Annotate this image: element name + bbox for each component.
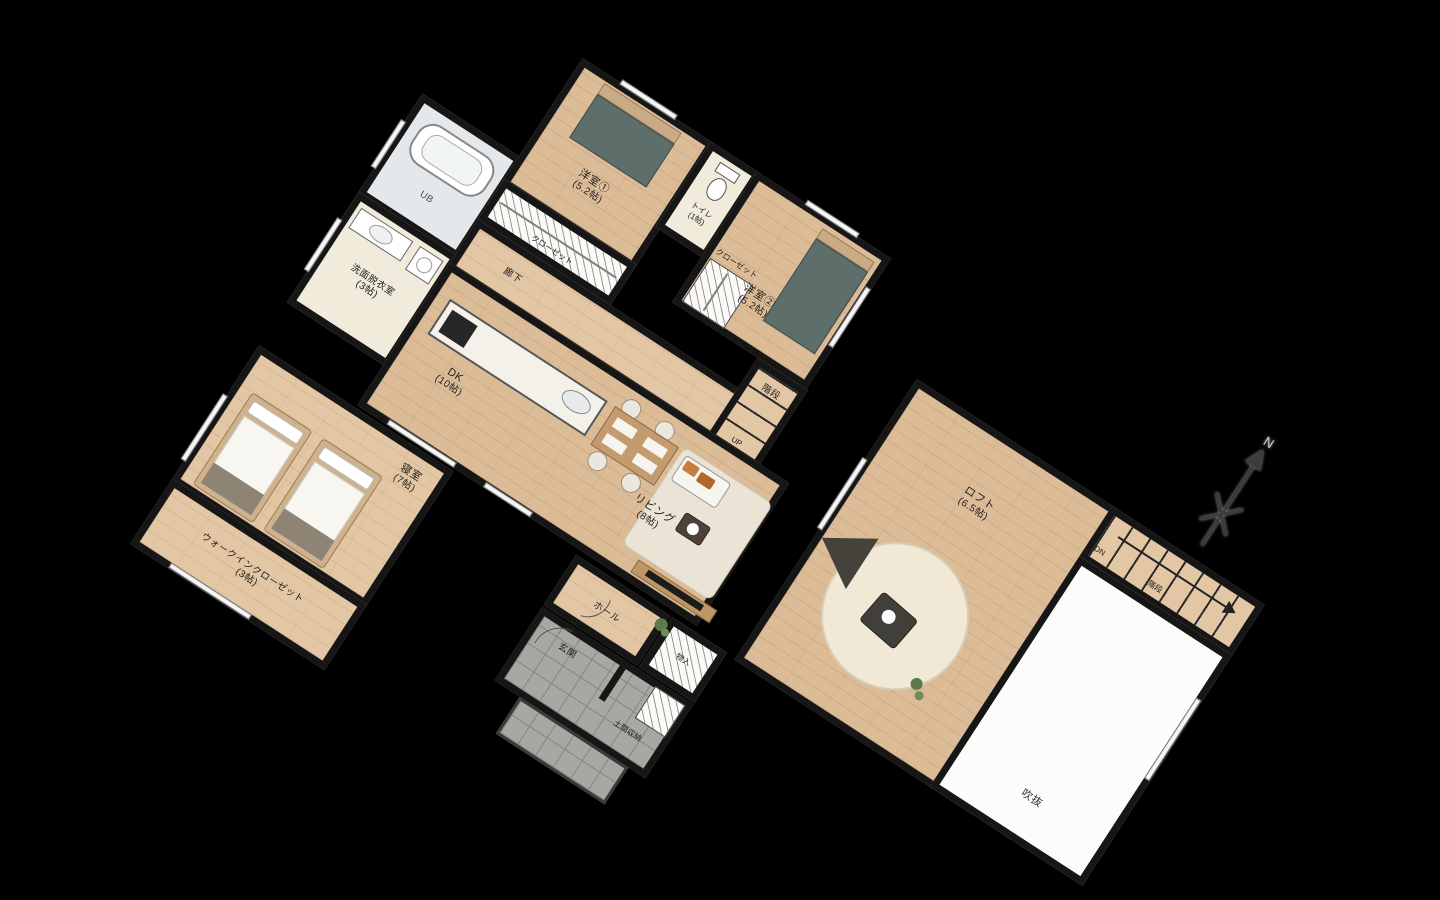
floor-plan: UB 洗面脱衣室(3帖) 洋室①(5.2帖) クローゼット トイレ(1帖) 洋室… [86, 0, 1367, 900]
compass-shaft [1200, 463, 1255, 545]
floor-plan-canvas: UB 洗面脱衣室(3帖) 洋室①(5.2帖) クローゼット トイレ(1帖) 洋室… [0, 0, 1440, 900]
